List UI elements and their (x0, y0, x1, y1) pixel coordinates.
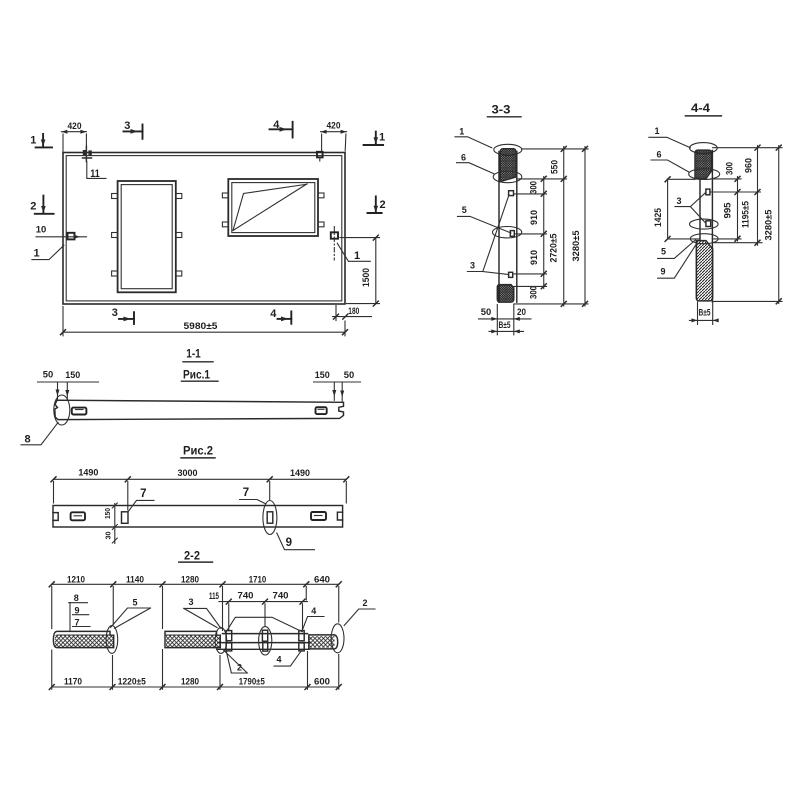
svg-text:3: 3 (188, 597, 193, 607)
svg-text:2-2: 2-2 (184, 550, 200, 562)
svg-text:1: 1 (30, 134, 36, 146)
svg-text:В±5: В±5 (499, 320, 511, 330)
svg-text:300: 300 (724, 162, 734, 175)
svg-text:9: 9 (660, 266, 665, 276)
svg-text:5980±5: 5980±5 (184, 321, 219, 332)
svg-text:1490: 1490 (290, 468, 310, 479)
svg-text:600: 600 (314, 676, 330, 687)
svg-text:1: 1 (654, 126, 659, 136)
svg-text:10: 10 (36, 225, 47, 236)
svg-text:7: 7 (74, 617, 79, 627)
svg-text:5: 5 (661, 246, 666, 256)
svg-text:4-4: 4-4 (691, 103, 711, 115)
svg-text:300: 300 (528, 286, 538, 299)
svg-text:2: 2 (380, 199, 386, 211)
svg-text:1500: 1500 (361, 268, 372, 287)
svg-text:7: 7 (243, 487, 249, 499)
svg-text:150: 150 (103, 508, 112, 519)
svg-text:Рис.2: Рис.2 (183, 446, 213, 458)
svg-text:6: 6 (656, 150, 661, 160)
svg-text:4: 4 (276, 654, 281, 664)
svg-text:3: 3 (470, 261, 475, 271)
svg-text:300: 300 (528, 181, 538, 194)
svg-text:740: 740 (273, 590, 289, 601)
svg-text:960: 960 (743, 158, 753, 173)
svg-text:995: 995 (723, 202, 733, 218)
svg-text:1-1: 1-1 (186, 348, 201, 360)
svg-text:1: 1 (379, 131, 385, 143)
svg-text:5: 5 (132, 597, 137, 607)
svg-text:1790±5: 1790±5 (239, 676, 266, 687)
svg-text:3280±5: 3280±5 (764, 209, 774, 240)
svg-text:3000: 3000 (178, 468, 198, 479)
svg-text:4: 4 (270, 308, 277, 320)
svg-text:2: 2 (30, 201, 36, 213)
svg-text:8: 8 (24, 434, 30, 446)
svg-text:150: 150 (315, 370, 330, 380)
svg-text:Рис.1: Рис.1 (183, 369, 211, 381)
svg-text:9: 9 (74, 605, 79, 615)
svg-text:910: 910 (529, 210, 539, 225)
svg-text:В±5: В±5 (699, 307, 711, 317)
svg-text:1: 1 (459, 127, 464, 137)
svg-text:30: 30 (104, 532, 113, 540)
svg-text:180: 180 (348, 306, 359, 316)
svg-text:8: 8 (74, 593, 79, 603)
svg-text:550: 550 (550, 160, 560, 174)
svg-text:1220±5: 1220±5 (118, 676, 147, 687)
svg-text:420: 420 (68, 121, 82, 132)
svg-text:740: 740 (238, 590, 254, 601)
svg-text:50: 50 (43, 370, 54, 380)
svg-text:1195±5: 1195±5 (741, 201, 751, 228)
svg-text:2: 2 (362, 598, 367, 608)
svg-text:1490: 1490 (78, 468, 98, 479)
svg-text:115: 115 (209, 591, 219, 601)
svg-text:910: 910 (529, 250, 539, 265)
svg-text:6: 6 (461, 153, 466, 163)
svg-text:1280: 1280 (181, 676, 199, 687)
svg-text:150: 150 (65, 370, 80, 380)
svg-text:50: 50 (344, 370, 355, 380)
svg-text:7: 7 (140, 488, 146, 500)
svg-text:5: 5 (462, 205, 467, 215)
svg-text:1: 1 (33, 248, 39, 260)
svg-text:3280±5: 3280±5 (571, 230, 581, 261)
svg-text:3: 3 (124, 120, 130, 132)
svg-text:1170: 1170 (64, 676, 82, 687)
svg-text:9: 9 (286, 537, 292, 549)
svg-text:3: 3 (112, 307, 118, 319)
svg-text:1425: 1425 (653, 208, 663, 227)
svg-text:3-3: 3-3 (492, 104, 511, 116)
svg-text:4: 4 (311, 606, 316, 616)
svg-text:50: 50 (481, 307, 492, 317)
svg-text:20: 20 (517, 307, 526, 317)
svg-text:420: 420 (327, 121, 341, 132)
svg-text:2720±5: 2720±5 (549, 233, 559, 262)
svg-text:1: 1 (354, 250, 360, 262)
svg-text:3: 3 (676, 196, 681, 206)
